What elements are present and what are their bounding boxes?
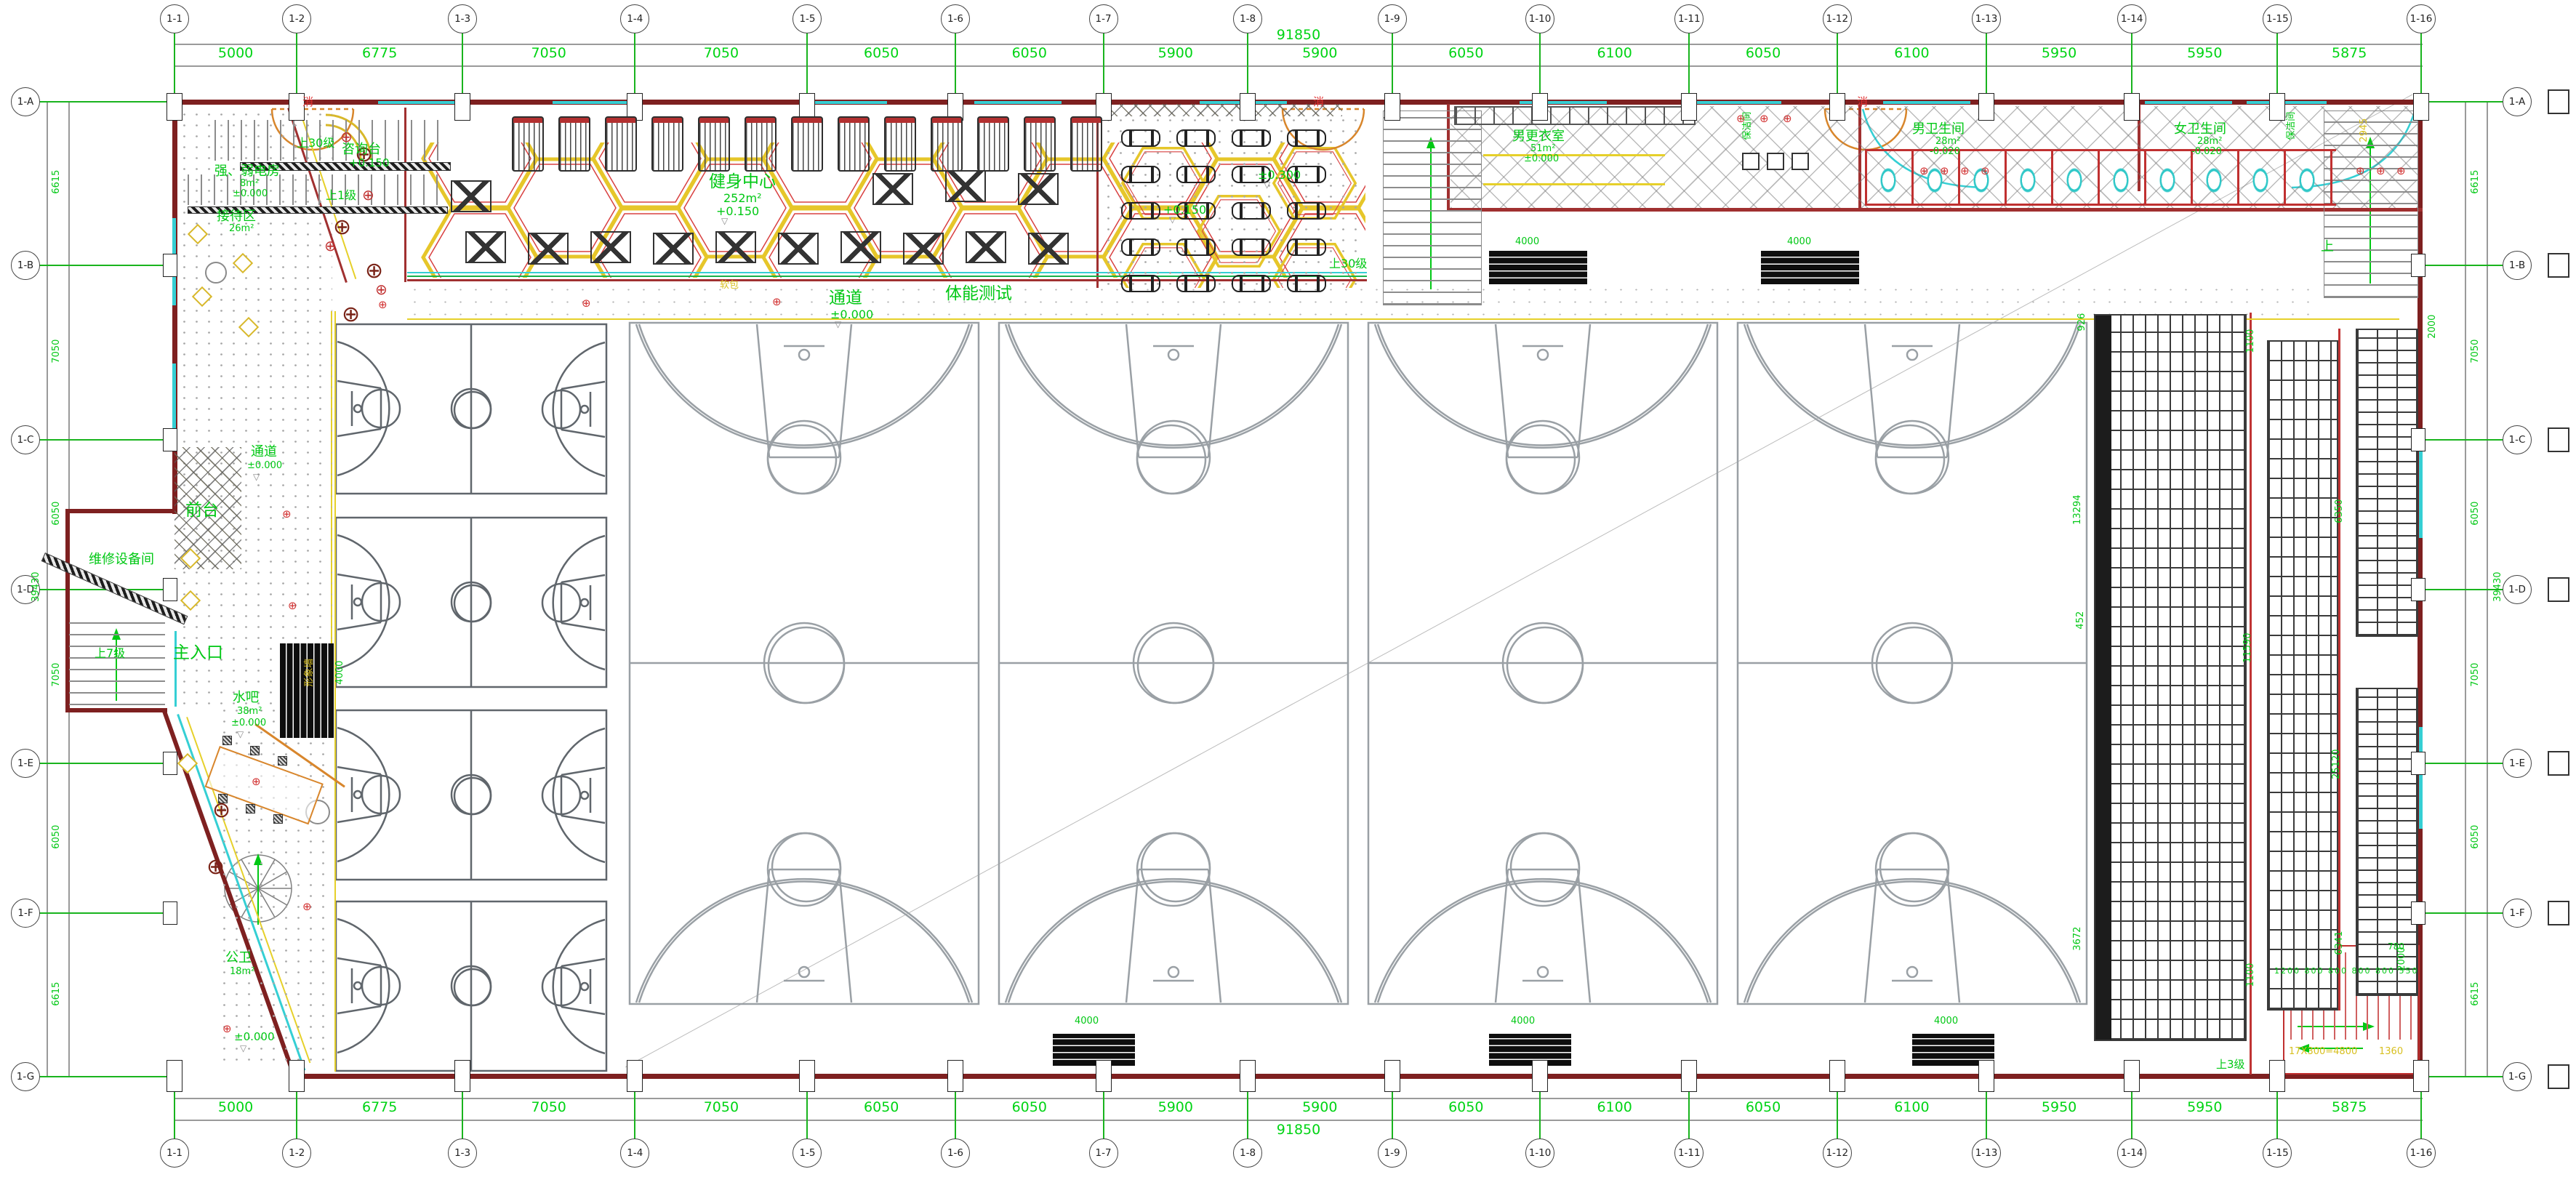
dim-bottom-3: 7050: [635, 1100, 807, 1115]
dim-top-1: 6775: [297, 46, 462, 61]
label-rooms-fitness-name: 健身中心: [709, 173, 776, 191]
column: [1978, 1060, 1994, 1092]
dim-bottom-5: 6050: [955, 1100, 1104, 1115]
grid-line: [2423, 763, 2503, 764]
grid-line: [2423, 912, 2503, 914]
window: [974, 101, 1062, 104]
retractable-bleacher: [1761, 251, 1859, 284]
gym-machine-icon: [465, 231, 506, 263]
grid-line: [38, 101, 174, 103]
label-dims-d4000: 4000: [1787, 237, 1811, 247]
label-rooms-front_desk-name: 前台: [185, 502, 219, 520]
grid-line: [2423, 1076, 2503, 1077]
column: [2411, 752, 2425, 775]
label-dims-d4000: 4000: [1075, 1016, 1099, 1027]
label-dims-d1100: 1100: [2246, 931, 2256, 1019]
grid-bubble-left-6: 1-G: [11, 1062, 40, 1091]
spin-bike-icon: [1232, 275, 1271, 292]
column: [1829, 93, 1845, 121]
column: [2413, 1060, 2429, 1092]
grid-line: [2423, 589, 2503, 590]
treadmill-icon: [651, 116, 683, 172]
label-rooms-corridor_top-name: 通道: [829, 289, 862, 308]
grid-bubble-bottom-11: 1-11: [1674, 1138, 1704, 1168]
dim-bottom-9: 6100: [1540, 1100, 1689, 1115]
dim-top-9: 6100: [1540, 46, 1689, 61]
column: [627, 1060, 643, 1092]
column: [2269, 93, 2285, 121]
grid-bubble-bottom-1: 1-1: [160, 1138, 189, 1168]
dim-right-3: 7050: [2471, 632, 2481, 719]
label-dims-d3672: 3672: [2073, 895, 2083, 982]
label-rooms-mens_locker-name: 男更衣室: [1512, 129, 1565, 144]
dim-top-10: 6050: [1689, 46, 1837, 61]
dim-bottom-4: 6050: [807, 1100, 955, 1115]
label-stairs-run_note: 17X300=4800: [2289, 1047, 2357, 1057]
climb-hold-icon: ⊕: [375, 282, 388, 297]
label-dims-d4000: 4000: [1511, 1016, 1535, 1027]
grid-line: [2423, 101, 2503, 103]
label-stairs-up30_mid: 上30级: [1329, 257, 1367, 270]
dim-top-14: 5875: [2277, 46, 2421, 61]
bleacher-platform: [2095, 316, 2111, 1040]
dim-right-5: 6615: [2471, 950, 2481, 1037]
plan-overlay: 1-11-11-21-21-31-31-41-41-51-51-61-61-71…: [0, 0, 2576, 1185]
dim-chain: [174, 1120, 2423, 1121]
gym-machine-icon: [903, 233, 944, 265]
column: [163, 254, 177, 277]
dim-bottom-14: 5875: [2277, 1100, 2421, 1115]
column: [454, 1060, 470, 1092]
column: [1384, 93, 1400, 121]
label-symbols-fire: 消: [302, 96, 313, 108]
column: [1681, 93, 1697, 121]
flower-icon: ⊕: [772, 297, 782, 308]
window: [1883, 101, 1970, 104]
section-marker: [2548, 253, 2569, 278]
flower-icon: ⊕: [282, 509, 292, 520]
flower-icon: ⊕: [1783, 113, 1792, 124]
grid-bubble-bottom-15: 1-15: [2263, 1138, 2292, 1168]
label-rooms-mens_locker-level: ±0.000: [1524, 154, 1559, 164]
flower-icon: ⊕: [288, 600, 297, 611]
label-dims-d2000: 2000: [2428, 283, 2438, 370]
label-rooms-womens_wc-name: 女卫生间: [2174, 122, 2226, 137]
bottom-wall: [294, 1074, 2423, 1079]
grid-bubble-bottom-12: 1-12: [1823, 1138, 1852, 1168]
label-symbols-level_mark: ▽: [1169, 215, 1176, 225]
gym-machine-icon: [1018, 173, 1059, 205]
column: [2411, 901, 2425, 925]
flower-icon: ⊕: [1919, 166, 1929, 177]
spin-bike-icon: [1176, 129, 1216, 147]
label-rooms-cleaning-name: 保洁间: [2287, 82, 2297, 169]
dim-chain: [174, 1098, 2423, 1099]
dim-total-top: 91850: [174, 28, 2423, 43]
grid-bubble-bottom-10: 1-10: [1525, 1138, 1554, 1168]
bench: [1483, 183, 1665, 185]
dim-bottom-0: 5000: [174, 1100, 297, 1115]
grid-line: [38, 763, 174, 764]
grid-bubble-bottom-16: 1-16: [2407, 1138, 2436, 1168]
treadmill-icon: [745, 116, 777, 172]
flower-icon: ⊕: [378, 300, 388, 310]
label-rooms-elec_room-name: 强、弱电房: [214, 164, 280, 179]
column: [1240, 1060, 1256, 1092]
label-stairs-up7: 上7级: [95, 647, 125, 660]
spin-bike-icon: [1176, 275, 1216, 292]
label-dims-d4000: 4000: [1934, 1016, 1958, 1027]
spin-bike-icon: [1121, 166, 1160, 183]
flower-icon: ⊕: [1760, 113, 1769, 124]
dim-right-0: 6615: [2471, 139, 2481, 226]
grid-bubble-left-4: 1-E: [11, 749, 40, 778]
label-rooms-maintenance-name: 维修设备间: [89, 553, 154, 567]
dim-chain: [174, 65, 2423, 67]
column: [163, 901, 177, 925]
gym-machine-icon: [451, 180, 491, 212]
flower-icon: ⊕: [2376, 166, 2386, 177]
toilet-stalls: [1865, 149, 2336, 206]
label-stairs-up3: 上3级: [2216, 1059, 2245, 1071]
column: [1384, 1060, 1400, 1092]
column: [1096, 1060, 1112, 1092]
label-rooms-fitness-area: 252m²: [723, 192, 762, 205]
window: [1694, 101, 1781, 104]
grid-line: [38, 912, 174, 914]
dim-bottom-6: 5900: [1104, 1100, 1248, 1115]
column: [1240, 93, 1256, 121]
grid-bubble-right-1: 1-B: [2503, 251, 2532, 280]
grid-bubble-bottom-8: 1-8: [1233, 1138, 1262, 1168]
dim-left-5: 6615: [52, 950, 62, 1037]
flower-icon: ⊕: [2396, 166, 2406, 177]
dim-top-0: 5000: [174, 46, 297, 61]
retractable-bleacher: [1489, 251, 1587, 284]
dim-bottom-1: 6775: [297, 1100, 462, 1115]
grid-line: [38, 265, 174, 266]
section-marker: [2548, 751, 2569, 776]
flower-icon: ⊕: [302, 901, 312, 912]
gym-machine-icon: [1028, 233, 1069, 265]
grid-bubble-bottom-4: 1-4: [620, 1138, 649, 1168]
column: [2411, 254, 2425, 277]
grid-bubble-bottom-5: 1-5: [793, 1138, 822, 1168]
label-symbols-fire: 消: [1857, 96, 1868, 108]
section-marker: [2548, 577, 2569, 602]
dim-top-5: 6050: [955, 46, 1104, 61]
bench: [1483, 154, 1665, 156]
treadmill-icon: [838, 116, 870, 172]
column: [1829, 1060, 1845, 1092]
gym-machine-icon: [653, 233, 694, 265]
dim-left-1: 7050: [52, 308, 62, 395]
label-levels-zero: ±0.000: [234, 1031, 275, 1043]
dim-total-bottom: 91850: [174, 1122, 2423, 1138]
dim-top-12: 5950: [1986, 46, 2132, 61]
retractable-bleacher: [1053, 1034, 1135, 1066]
label-misc-soft: 软包: [720, 281, 739, 291]
label-rooms-fitness_test-name: 体能测试: [945, 285, 1012, 303]
dim-left-3: 7050: [52, 632, 62, 719]
dim-left-4: 6050: [52, 793, 62, 880]
treadmill-icon: [512, 116, 544, 172]
label-rooms-main_entrance-name: 主入口: [173, 644, 223, 662]
label-rooms-cleaning-name: 保洁间: [1743, 82, 1753, 169]
treadmill-icon: [884, 116, 916, 172]
spin-bike-icon: [1287, 129, 1326, 147]
column: [289, 1060, 305, 1092]
dim-bottom-2: 7050: [462, 1100, 635, 1115]
label-rooms-corridor_left-level: ±0.000: [247, 461, 282, 471]
column: [1681, 1060, 1697, 1092]
label-rooms-reception-name: 接待区: [217, 209, 256, 224]
column: [2124, 1060, 2140, 1092]
soft-wall-band: [1102, 104, 1342, 116]
treadmill-icon: [977, 116, 1009, 172]
bleacher-bank-d: [2356, 688, 2418, 996]
grid-bubble-bottom-3: 1-3: [448, 1138, 477, 1168]
sink-icon: [1767, 153, 1784, 170]
table: [205, 262, 227, 284]
spin-bike-icon: [1176, 166, 1216, 183]
label-symbols-level_mark: ▽: [240, 1044, 246, 1053]
window: [172, 363, 176, 436]
section-marker: [2548, 1064, 2569, 1089]
column: [454, 93, 470, 121]
grid-line: [38, 1076, 174, 1077]
spin-bike-icon: [1121, 275, 1160, 292]
sink-icon: [1791, 153, 1809, 170]
lockers: [1454, 106, 1696, 125]
label-dims-d1100: 1100: [2246, 297, 2256, 385]
label-rooms-info_desk-level: +0.150: [349, 157, 390, 169]
spin-bike-icon: [1176, 238, 1216, 256]
dim-top-3: 7050: [635, 46, 807, 61]
grid-bubble-left-0: 1-A: [11, 87, 40, 116]
treadmill-icon: [558, 116, 590, 172]
gym-machine-icon: [528, 233, 569, 265]
label-stairs-run_note2: 1360: [2379, 1047, 2403, 1057]
dim-bottom-12: 5950: [1986, 1100, 2132, 1115]
grid-bubble-right-2: 1-C: [2503, 425, 2532, 454]
spin-bike-icon: [1232, 202, 1271, 220]
plant-icon: ⊕: [333, 217, 351, 238]
label-symbols-level_mark: ▽: [237, 730, 244, 739]
label-rooms-mens_wc-name: 男卫生间: [1912, 122, 1965, 137]
grid-bubble-right-3: 1-D: [2503, 575, 2532, 604]
label-stairs-up: 上: [2321, 240, 2334, 254]
gym-machine-icon: [778, 233, 819, 265]
stair-nw: [188, 174, 448, 205]
spin-bike-icon: [1287, 275, 1326, 292]
bleacher-bank-a: [2094, 314, 2247, 1041]
dim-top-2: 7050: [462, 46, 635, 61]
grid-bubble-right-5: 1-F: [2503, 899, 2532, 928]
column: [2269, 1060, 2285, 1092]
grid-bubble-left-5: 1-F: [11, 899, 40, 928]
label-stairs-up30_left: 上30级: [297, 137, 334, 150]
spin-bike-icon: [1232, 238, 1271, 256]
climb-hold-icon: ⊕: [362, 188, 374, 202]
label-rooms-mens_wc-level: -0.020: [1930, 147, 1960, 157]
dim-top-4: 6050: [807, 46, 955, 61]
label-dims-d13294: 13294: [2073, 466, 2083, 553]
dim-top-6: 5900: [1104, 46, 1248, 61]
grid-line: [2423, 439, 2503, 441]
section-marker: [2548, 89, 2569, 114]
flower-icon: ⊕: [1940, 166, 1949, 177]
label-rooms-water_bar-level: ±0.000: [231, 718, 266, 728]
corridor-floor: [407, 284, 2312, 318]
porch-top-wall: [65, 509, 177, 513]
label-dims-d926: 926: [2077, 278, 2087, 366]
grid-bubble-left-1: 1-B: [11, 251, 40, 280]
treadmill-icon: [791, 116, 823, 172]
chair-icon: [278, 756, 287, 766]
column: [2124, 93, 2140, 121]
grid-bubble-bottom-6: 1-6: [941, 1138, 970, 1168]
label-dims-d4000: 4000: [335, 629, 345, 716]
flower-icon: ⊕: [1981, 166, 1990, 177]
label-rooms-womens_wc-level: -0.020: [2191, 147, 2222, 157]
label-dims-d6350: 6350: [2335, 467, 2345, 555]
grid-bubble-bottom-14: 1-14: [2117, 1138, 2146, 1168]
dim-bottom-11: 6100: [1837, 1100, 1986, 1115]
flower-icon: ⊕: [222, 1024, 232, 1035]
dim-bottom-7: 5900: [1248, 1100, 1392, 1115]
plant-icon: ⊕: [206, 856, 225, 878]
stair-ne: [2324, 111, 2418, 298]
grid-bubble-bottom-7: 1-7: [1089, 1138, 1118, 1168]
column: [163, 578, 177, 601]
spin-bike-icon: [1287, 238, 1326, 256]
grid-bubble-bottom-9: 1-9: [1378, 1138, 1407, 1168]
grid-bubble-bottom-13: 1-13: [1972, 1138, 2001, 1168]
flower-icon: ⊕: [252, 776, 261, 787]
treadmill-icon: [1024, 116, 1056, 172]
grid-line: [38, 439, 174, 441]
dim-top-7: 5900: [1248, 46, 1392, 61]
column: [1532, 1060, 1548, 1092]
grid-bubble-right-0: 1-A: [2503, 87, 2532, 116]
label-dims-d2000: 2000: [2397, 915, 2407, 1003]
dim-right-4: 6050: [2471, 793, 2481, 880]
plant-icon: ⊕: [212, 800, 230, 822]
dim-total-right: 39430: [2493, 543, 2503, 630]
column: [163, 428, 177, 451]
label-dims-d25120: 25120: [2332, 720, 2342, 808]
section-marker: [2548, 427, 2569, 452]
label-rooms-image_wall-name: 形象墙: [305, 629, 315, 716]
treadmill-icon: [1070, 116, 1102, 172]
dim-right-1: 7050: [2471, 308, 2481, 395]
plant-icon: ⊕: [342, 304, 360, 326]
stair-mid: [1383, 111, 1482, 305]
label-dims-d2945: 2945: [2359, 87, 2370, 174]
label-symbols-level_mark: ▽: [721, 217, 728, 226]
dim-right-2: 6050: [2471, 470, 2481, 557]
porch-bottom-wall: [65, 708, 167, 712]
grid-bubble-right-4: 1-E: [2503, 749, 2532, 778]
window: [2419, 436, 2423, 538]
label-symbols-level_mark: ▽: [835, 320, 841, 329]
dim-bottom-10: 6050: [1689, 1100, 1837, 1115]
dim-left-2: 6050: [52, 470, 62, 557]
floor-plan-canvas: 1-11-11-21-21-31-31-41-41-51-51-61-61-71…: [0, 0, 2576, 1185]
label-symbols-level_mark: ▽: [253, 473, 260, 482]
treadmill-icon: [931, 116, 963, 172]
grid-bubble-right-6: 1-G: [2503, 1062, 2532, 1091]
spin-bike-icon: [1232, 129, 1271, 147]
column: [1978, 93, 1994, 121]
column: [2413, 93, 2429, 121]
gym-machine-icon: [966, 231, 1006, 263]
window: [2145, 101, 2232, 104]
chair-icon: [222, 736, 232, 745]
section-marker: [2548, 901, 2569, 925]
column: [166, 93, 182, 121]
grid-bubble-bottom-2: 1-2: [282, 1138, 311, 1168]
column: [947, 1060, 963, 1092]
gym-machine-icon: [715, 231, 756, 263]
dim-bottom-8: 6050: [1392, 1100, 1541, 1115]
spin-bike-icon: [1121, 238, 1160, 256]
grid-line: [2423, 265, 2503, 266]
label-symbols-fire: 消: [1313, 96, 1324, 108]
spin-bike-icon: [1121, 129, 1160, 147]
climb-hold-icon: ⊕: [324, 238, 337, 253]
dim-top-11: 6100: [1837, 46, 1986, 61]
treadmill-icon: [605, 116, 637, 172]
chair-icon: [273, 814, 283, 824]
spin-bike-icon: [1121, 202, 1160, 220]
label-rooms-public_wc-area: 18m²: [230, 967, 254, 977]
label-rooms-reception-area: 26m²: [229, 224, 254, 234]
label-dims-d4000: 4000: [1515, 237, 1539, 247]
gym-machine-icon: [945, 170, 986, 202]
dim-left-0: 6615: [52, 139, 62, 226]
column: [166, 1060, 182, 1092]
dim-top-13: 5950: [2132, 46, 2277, 61]
column: [163, 752, 177, 775]
dim-top-8: 6050: [1392, 46, 1541, 61]
dim-total-left: 39430: [31, 543, 41, 630]
dim-bottom-13: 5950: [2132, 1100, 2277, 1115]
flower-icon: ⊕: [582, 298, 591, 309]
retractable-bleacher: [1489, 1034, 1571, 1066]
column: [1532, 93, 1548, 121]
gym-machine-icon: [590, 231, 631, 263]
treadmill-icon: [698, 116, 730, 172]
label-rooms-elec_room-level: ±0.000: [233, 189, 268, 199]
bleacher-bank-b: [2267, 340, 2338, 1011]
label-rooms-corridor_left-name: 通道: [251, 445, 277, 459]
chair-icon: [246, 804, 255, 814]
flower-icon: ⊕: [1960, 166, 1970, 177]
spin-bike-icon: [1287, 202, 1326, 220]
column: [2411, 428, 2425, 451]
label-rooms-water_bar-name: 水吧: [233, 691, 259, 705]
label-dims-d452: 452: [2076, 577, 2086, 664]
label-rooms-public_wc-name: 公卫: [225, 951, 252, 965]
plant-icon: ⊕: [365, 260, 383, 282]
chair-icon: [250, 746, 260, 755]
gym-machine-icon: [872, 173, 913, 205]
label-symbols-level_mark: ▽: [1264, 180, 1270, 190]
entry-steps: [69, 619, 165, 705]
label-stairs-up1: 上1级: [326, 189, 356, 202]
